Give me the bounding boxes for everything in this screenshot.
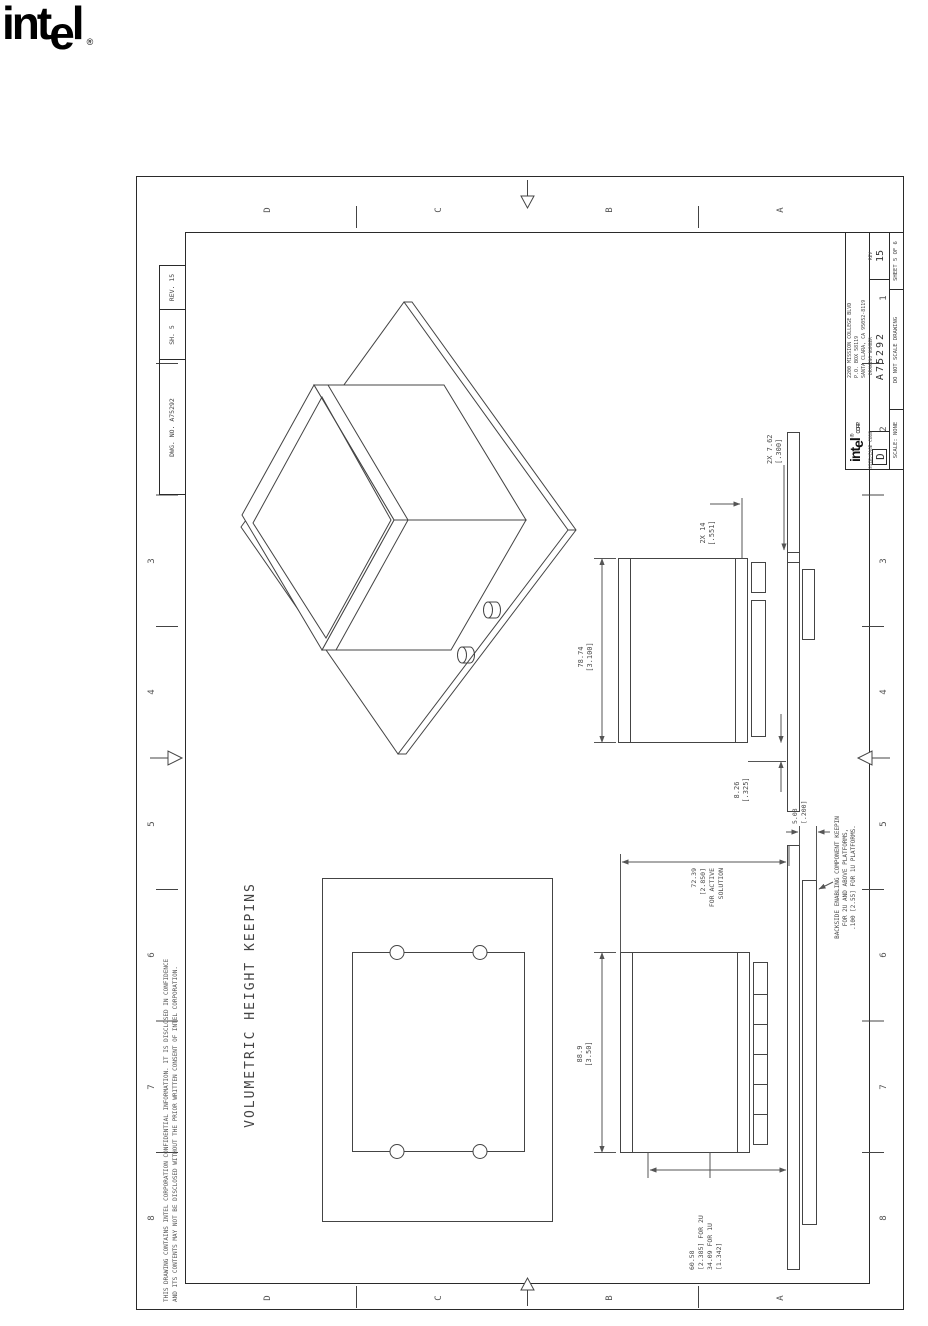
- rev-value: 15: [876, 232, 886, 280]
- company-address: 2200 MISSION COLLEGE BLVD P.O. BOX 58119…: [847, 300, 868, 378]
- intel-logo-e: e: [49, 7, 72, 59]
- zone-col-label: 8: [880, 1208, 889, 1228]
- dim-line: 78.74: [577, 612, 586, 702]
- zone-col-label: 6: [880, 945, 889, 965]
- note-line: .100 [2.55] FOR 1U PLATFORMS.: [850, 775, 858, 980]
- corp-label: CORP.: [856, 423, 862, 433]
- zone-row-label: A: [777, 1288, 786, 1308]
- drawing-sheet: THIS DRAWING CONTAINS INTEL CORPORATION …: [136, 176, 904, 1310]
- zone-col-label: 6: [148, 945, 157, 965]
- dim-active-solution: 72.39 [2.850] FOR ACTIVE SOLUTION: [690, 868, 726, 958]
- scale-label: SCALE: NONE: [894, 410, 900, 470]
- dim-line: [2.850]: [699, 868, 708, 958]
- dim-line: [.325]: [742, 766, 751, 814]
- size-value: D: [875, 449, 886, 464]
- dim-holes: 2X 7.62 [.300]: [766, 434, 784, 464]
- center-edge-marks: [150, 180, 890, 1306]
- dim-line: [.200]: [800, 801, 809, 824]
- dim-line: 2X 14: [699, 510, 708, 556]
- zone-col-label: 8: [148, 1208, 157, 1228]
- do-not-scale-label: DO NOT SCALE DRAWING: [894, 290, 900, 410]
- intel-mini-e: e: [850, 441, 866, 448]
- dim-height-2u-1u: 60.58 [2.385] FOR 2U 34.09 FOR 1U [1.342…: [688, 1182, 724, 1270]
- zone-row-label: D: [264, 200, 273, 220]
- dim-width-right: 78.74 [3.100]: [577, 612, 595, 702]
- dim-line: [.551]: [708, 510, 717, 556]
- zone-row-label: A: [777, 200, 786, 220]
- zone-col-label: 5: [880, 814, 889, 834]
- drawing-linework: [136, 176, 904, 1310]
- note-line: FOR 2U AND ABOVE PLATFORMS,: [842, 775, 850, 980]
- address-line: P.O. BOX 58119: [854, 300, 861, 378]
- title-block-intel-logo: intel®CORP.: [848, 423, 862, 462]
- zone-col-label: 7: [148, 1077, 157, 1097]
- confidentiality-note-line2: AND ITS CONTENTS MAY NOT BE DISCLOSED WI…: [173, 966, 179, 1302]
- registered-mark-icon: ®: [87, 37, 94, 47]
- dim-line: [2.385] FOR 2U: [697, 1182, 706, 1270]
- rev-label: REV: [870, 232, 875, 280]
- ref-revision: REV. 15: [159, 265, 185, 310]
- dim-line: 72.39: [690, 868, 699, 958]
- zone-col-label: 3: [880, 551, 889, 571]
- confidentiality-note-line1: THIS DRAWING CONTAINS INTEL CORPORATION …: [164, 959, 170, 1302]
- zone-row-label: C: [435, 200, 444, 220]
- drawing-number-value: A75292: [876, 280, 886, 432]
- intel-logo-int: int: [2, 0, 49, 49]
- dim-line: [3.50]: [585, 1022, 594, 1086]
- dim-line: 2X 7.62: [766, 434, 775, 464]
- registered-mark-icon: ®: [850, 435, 856, 438]
- dim-line: [.300]: [775, 434, 784, 464]
- drawing-title: VOLUMETRIC HEIGHT KEEPINS: [244, 878, 257, 1132]
- zone-col-label: 3: [148, 551, 157, 571]
- intel-logo-l: l: [72, 0, 82, 49]
- ref-dwg-number: DWG. NO. A75292: [159, 360, 185, 495]
- zone-row-label: D: [264, 1288, 273, 1308]
- zone-row-label: B: [606, 200, 615, 220]
- zone-col-label: 5: [148, 814, 157, 834]
- dim-width-left: 88.9 [3.50]: [576, 1022, 594, 1086]
- backside-keepin-note: BACKSIDE ENABLING COMPONENT KEEPIN FOR 2…: [834, 775, 858, 980]
- ref-sheet-number: SH. 5: [159, 310, 185, 360]
- dim-line: FOR ACTIVE: [708, 868, 717, 958]
- sheet-of-label: SHEET 5 OF 6: [894, 232, 900, 290]
- note-line: BACKSIDE ENABLING COMPONENT KEEPIN: [834, 775, 842, 980]
- zone-ticks: [156, 206, 884, 1308]
- drawing-number-label: DRAWING NUMBER: [870, 280, 875, 432]
- dim-line: 60.58: [688, 1182, 697, 1270]
- address-line: SANTA CLARA, CA 95052-8119: [861, 300, 868, 378]
- dim-line: [1.342]: [715, 1182, 724, 1270]
- side-view-right: [619, 433, 815, 812]
- isometric-view: [241, 302, 576, 754]
- zone-col-label: 7: [880, 1077, 889, 1097]
- zone-row-label: C: [435, 1288, 444, 1308]
- intel-mini-int: int: [847, 448, 863, 462]
- address-line: 2200 MISSION COLLEGE BLVD: [847, 300, 854, 378]
- dim-lip: 8.26 [.325]: [733, 766, 751, 814]
- zone-col-label: 4: [880, 682, 889, 702]
- dim-standoff: 2X 14 [.551]: [699, 510, 717, 556]
- zone-col-label: 4: [148, 682, 157, 702]
- zone-row-label: B: [606, 1288, 615, 1308]
- intel-logo: intel®: [2, 0, 88, 50]
- dim-line: 8.26: [733, 766, 742, 814]
- dim-line: SOLUTION: [717, 868, 726, 958]
- sheet-border: [137, 177, 904, 1310]
- dim-line: 34.09 FOR 1U: [706, 1182, 715, 1270]
- dim-line: 5.08: [791, 801, 800, 824]
- dim-backside-depth: 5.08 [.200]: [791, 801, 809, 824]
- top-view: [323, 879, 553, 1222]
- dim-line: 88.9: [576, 1022, 585, 1086]
- dim-line: [3.100]: [586, 612, 595, 702]
- size-cage-code-label: SIZE/CAGE CODE: [870, 432, 875, 469]
